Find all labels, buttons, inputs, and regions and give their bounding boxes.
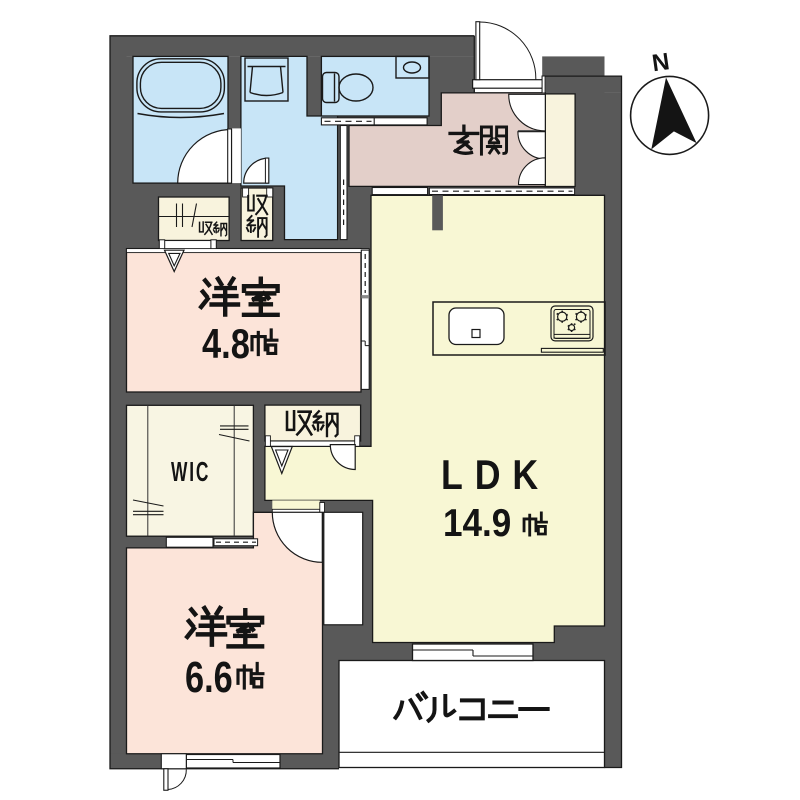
svg-text:14.9: 14.9	[443, 500, 511, 544]
svg-text:WIC: WIC	[171, 456, 210, 487]
svg-text:6.6: 6.6	[185, 653, 233, 702]
svg-text:LDK: LDK	[441, 452, 550, 498]
svg-text:4.8: 4.8	[202, 321, 250, 368]
